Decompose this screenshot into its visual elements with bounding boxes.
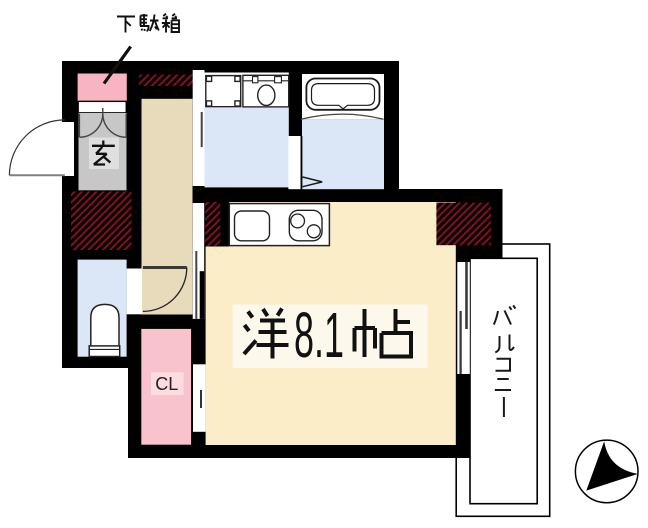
svg-text:8.1: 8.1 (294, 299, 344, 371)
svg-text:CL: CL (155, 374, 178, 394)
